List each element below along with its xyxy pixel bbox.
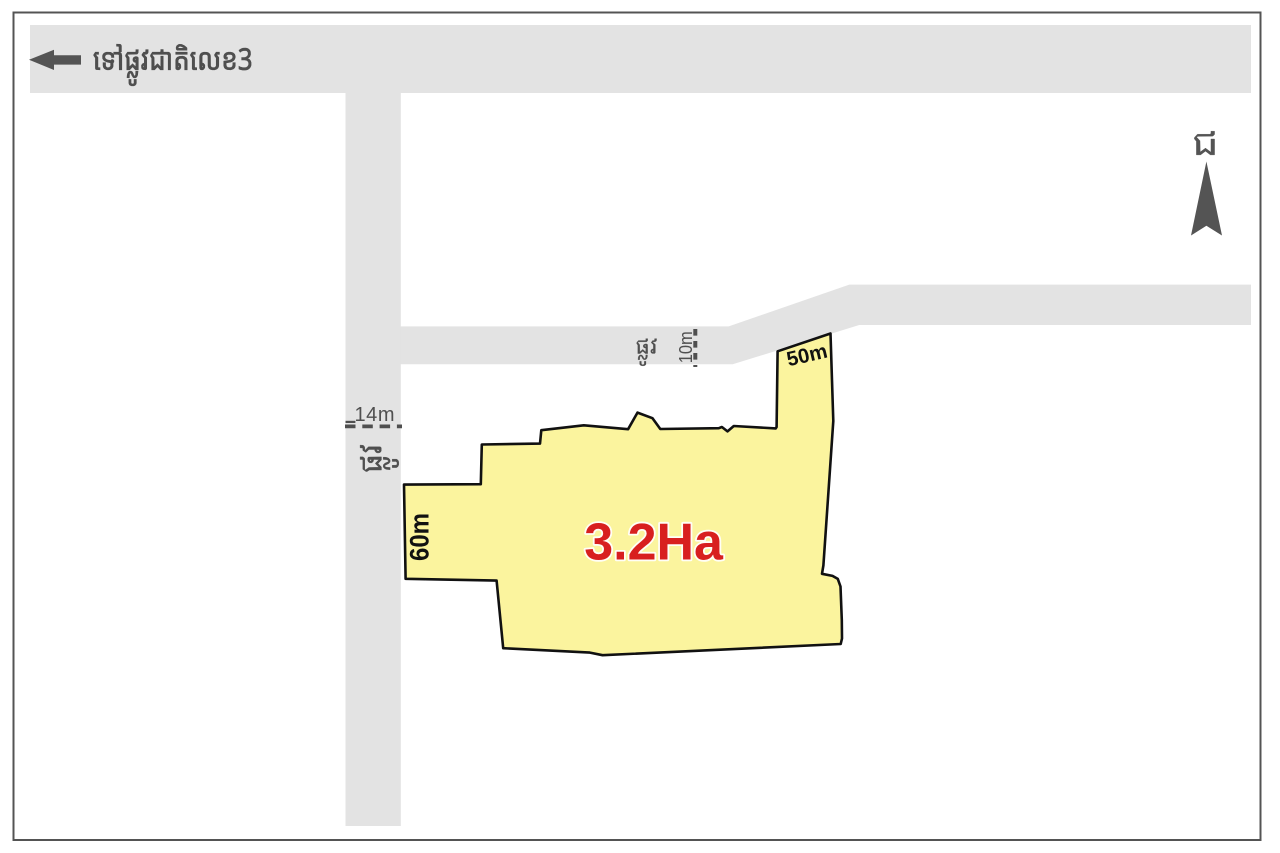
svg-text:3.2Ha: 3.2Ha <box>584 513 724 571</box>
svg-text:14m: 14m <box>355 404 395 426</box>
svg-text:60m: 60m <box>404 513 434 561</box>
svg-text:10m: 10m <box>676 331 696 363</box>
